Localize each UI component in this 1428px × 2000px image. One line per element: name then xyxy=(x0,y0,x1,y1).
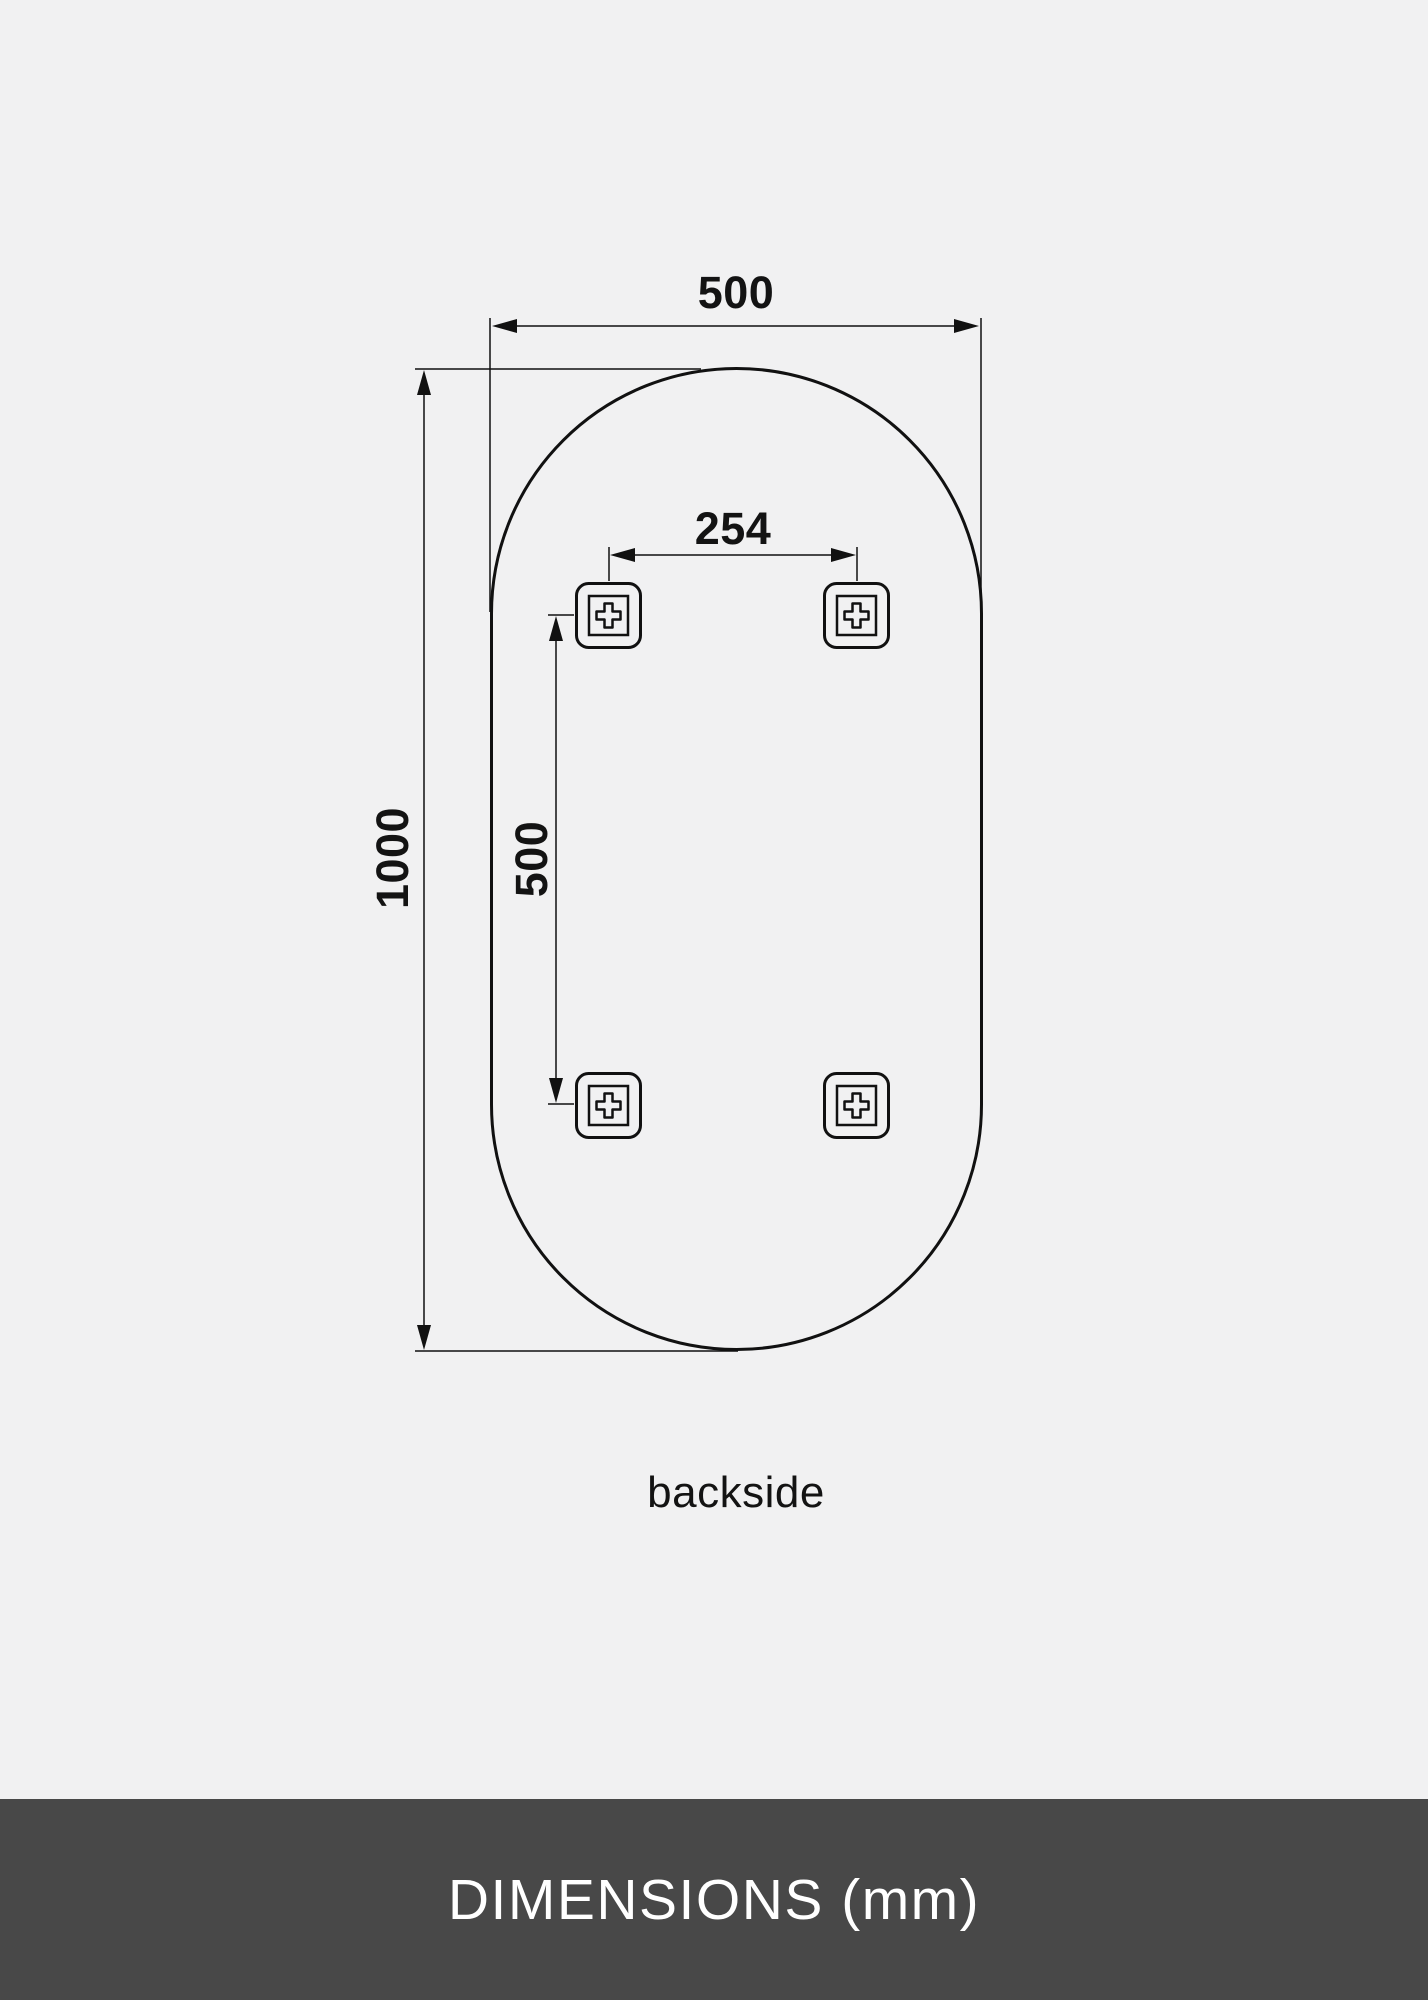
arrow-right-icon xyxy=(954,319,979,333)
dimension-height xyxy=(415,369,738,1351)
mounting-bracket-icon-top-left xyxy=(577,584,641,648)
dimension-height-label: 1000 xyxy=(367,807,419,909)
arrow-up-icon xyxy=(549,616,563,641)
footer-bar: DIMENSIONS (mm) xyxy=(0,1799,1428,2000)
mounting-bracket-icon-bottom-right xyxy=(825,1074,889,1138)
mounting-bracket-icon-top-right xyxy=(825,584,889,648)
arrow-left-icon xyxy=(492,319,517,333)
arrow-right-icon xyxy=(831,548,856,562)
dimension-bracket-spacing-horizontal-label: 254 xyxy=(695,503,772,555)
mounting-bracket-icon-bottom-left xyxy=(577,1074,641,1138)
dimension-bracket-spacing-vertical-label: 500 xyxy=(506,821,558,898)
arrow-left-icon xyxy=(610,548,635,562)
arrow-down-icon xyxy=(417,1325,431,1350)
dimension-width-label: 500 xyxy=(698,267,775,319)
arrow-up-icon xyxy=(417,370,431,395)
dimension-width xyxy=(490,318,981,612)
footer-title: DIMENSIONS (mm) xyxy=(448,1867,980,1933)
arrow-down-icon xyxy=(549,1078,563,1103)
view-label: backside xyxy=(647,1468,825,1518)
